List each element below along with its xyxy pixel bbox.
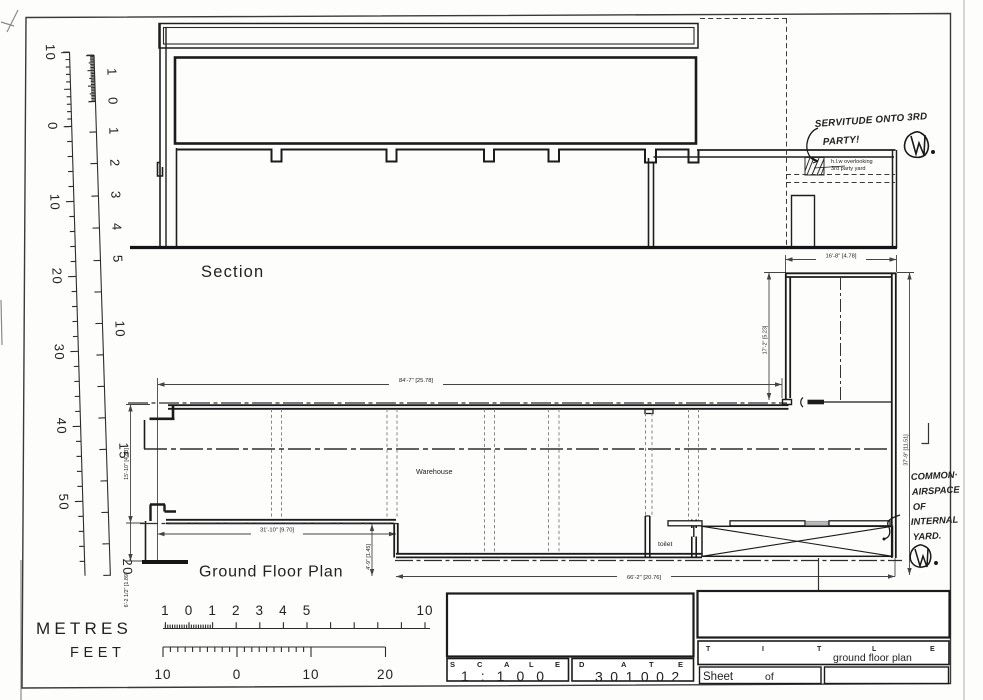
svg-text:3: 3 <box>256 603 265 618</box>
svg-text:4: 4 <box>109 223 124 232</box>
svg-text:Ground Floor Plan: Ground Floor Plan <box>199 564 343 581</box>
svg-text:10: 10 <box>154 667 171 682</box>
svg-text:1: 1 <box>106 127 121 136</box>
svg-text:Warehouse: Warehouse <box>416 467 453 476</box>
svg-text:0: 0 <box>185 603 194 618</box>
svg-text:0: 0 <box>233 667 242 682</box>
svg-text:20: 20 <box>377 667 394 682</box>
svg-text:E: E <box>930 646 935 653</box>
svg-text:0: 0 <box>105 97 120 106</box>
svg-text:S: S <box>450 660 455 669</box>
svg-text:T: T <box>706 646 711 653</box>
svg-text:30: 30 <box>52 343 68 361</box>
svg-text:5: 5 <box>110 255 125 264</box>
svg-text:40: 40 <box>54 417 70 435</box>
svg-text:10: 10 <box>47 194 63 212</box>
svg-text:17'-2" [5.23]: 17'-2" [5.23] <box>763 325 769 354</box>
svg-text:10: 10 <box>43 44 59 62</box>
svg-text:YARD.: YARD. <box>913 530 942 542</box>
svg-text:h.l.w overlooking: h.l.w overlooking <box>831 159 873 165</box>
svg-text:4'-9" [1.45]: 4'-9" [1.45] <box>366 544 372 570</box>
svg-text:FEET: FEET <box>70 645 125 661</box>
svg-text:toilet: toilet <box>658 541 672 548</box>
svg-text:0: 0 <box>45 122 60 131</box>
svg-text:66'-2" [20.76]: 66'-2" [20.76] <box>627 575 661 581</box>
svg-text:37'-9" [11.51]: 37'-9" [11.51] <box>904 434 910 466</box>
svg-text:50: 50 <box>56 493 72 511</box>
svg-text:10: 10 <box>416 603 433 618</box>
svg-text:5: 5 <box>303 603 312 618</box>
svg-text:D: D <box>579 660 585 669</box>
svg-text:15'-10" [4.83]: 15'-10" [4.83] <box>124 448 130 480</box>
svg-text:3: 3 <box>108 191 123 200</box>
svg-text:ground floor plan: ground floor plan <box>833 652 912 664</box>
svg-text:2: 2 <box>107 159 122 168</box>
svg-text:1: 1 <box>208 603 217 618</box>
svg-text:6'-2 1/2" [1.89]: 6'-2 1/2" [1.89] <box>124 572 130 607</box>
svg-text:20: 20 <box>49 268 65 286</box>
svg-text:OF: OF <box>913 500 927 512</box>
svg-text:301002: 301002 <box>595 669 687 685</box>
svg-text:of: of <box>765 671 774 683</box>
svg-text:I: I <box>762 646 764 653</box>
svg-text:METRES: METRES <box>36 619 132 638</box>
svg-text:10: 10 <box>112 320 128 338</box>
svg-text:84'-7" [25.78]: 84'-7" [25.78] <box>399 378 433 384</box>
svg-text:T: T <box>817 646 822 653</box>
svg-text:1:100: 1:100 <box>461 668 556 684</box>
svg-text:16'-8" [4.78]: 16'-8" [4.78] <box>826 254 857 260</box>
svg-text:Sheet: Sheet <box>703 671 734 683</box>
svg-text:10: 10 <box>302 667 319 682</box>
svg-text:31'-10" [9.70]: 31'-10" [9.70] <box>260 528 294 534</box>
svg-text:4: 4 <box>279 603 288 618</box>
svg-text:Section: Section <box>201 263 264 281</box>
svg-text:1: 1 <box>161 603 170 618</box>
svg-text:1: 1 <box>104 68 119 77</box>
svg-text:2: 2 <box>232 603 241 618</box>
